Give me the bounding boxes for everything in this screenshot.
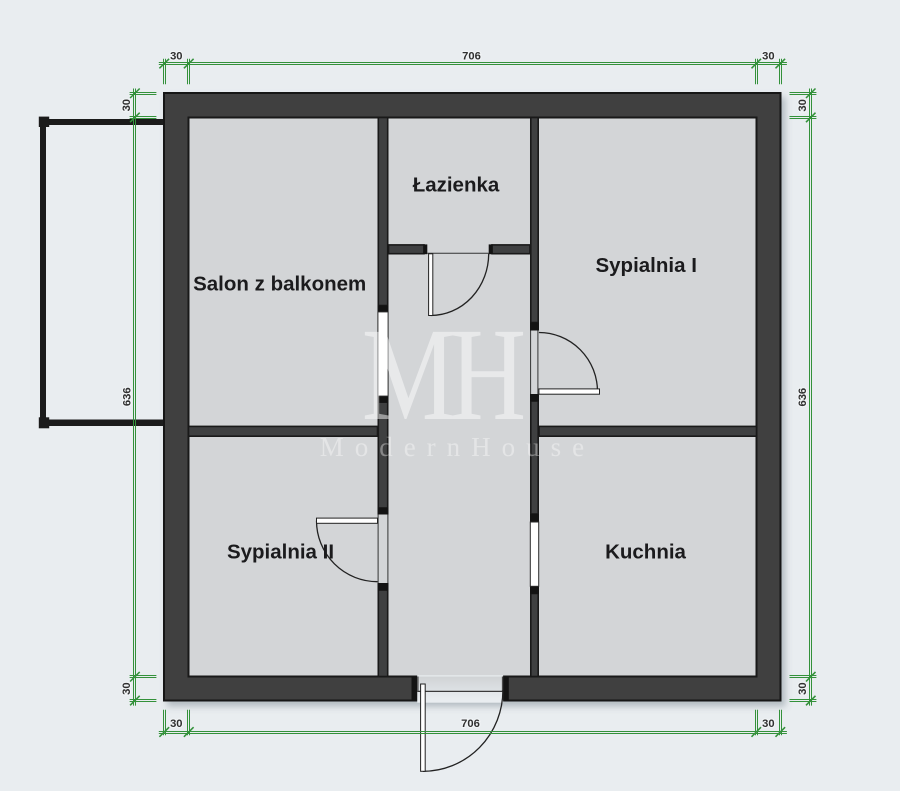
svg-text:ModernHouse: ModernHouse [320,432,595,462]
svg-text:30: 30 [121,682,133,694]
svg-text:30: 30 [170,51,182,63]
svg-text:636: 636 [121,387,133,406]
svg-text:Salon z balkonem: Salon z balkonem [193,273,366,296]
svg-text:Kuchnia: Kuchnia [605,540,686,563]
svg-text:30: 30 [121,99,133,111]
svg-text:30: 30 [170,718,182,730]
svg-text:30: 30 [797,99,809,111]
svg-text:30: 30 [762,718,774,730]
svg-text:706: 706 [462,51,481,63]
svg-text:636: 636 [797,388,809,407]
svg-text:MH: MH [362,302,524,449]
svg-text:Sypialnia I: Sypialnia I [595,254,696,277]
svg-text:30: 30 [797,682,809,694]
svg-text:Sypialnia II: Sypialnia II [227,540,334,563]
svg-text:Łazienka: Łazienka [413,173,500,196]
svg-text:30: 30 [762,51,774,63]
svg-text:706: 706 [461,718,480,730]
